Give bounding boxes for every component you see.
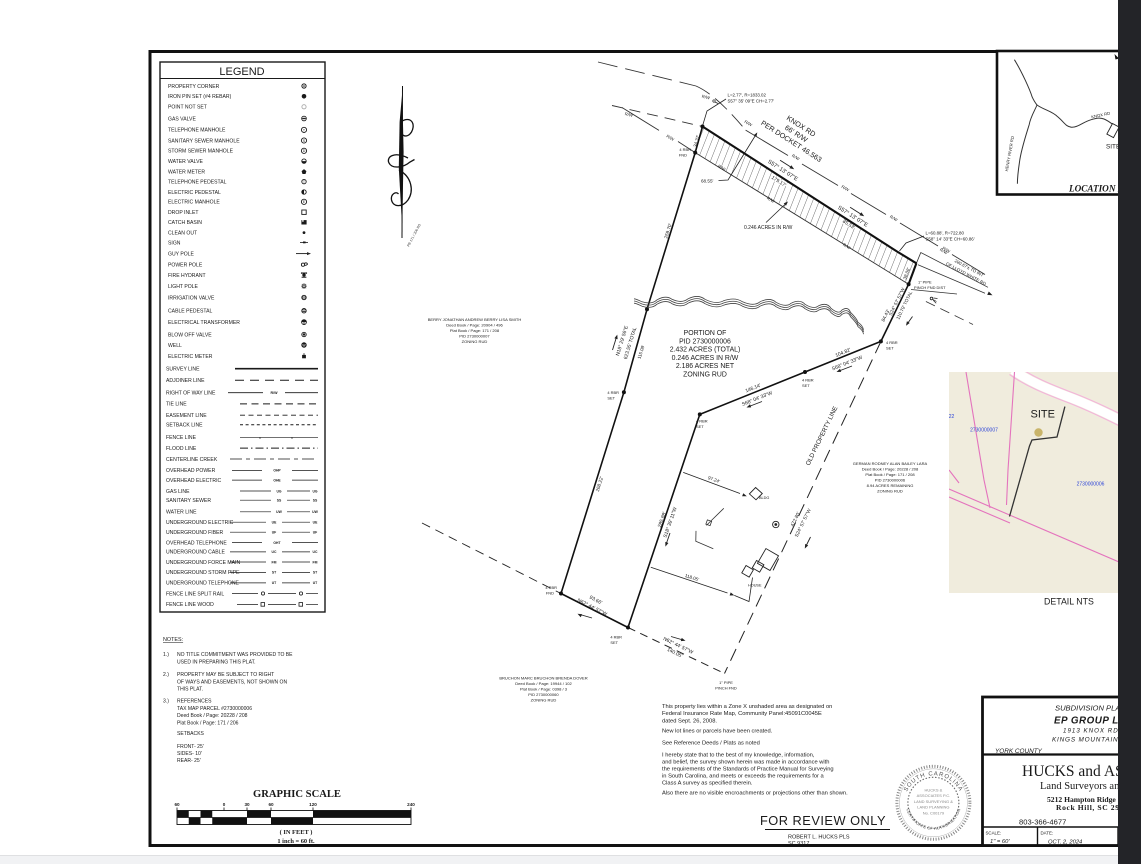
svg-text:WELL: WELL bbox=[168, 343, 182, 349]
svg-text:TELEPHONE MANHOLE: TELEPHONE MANHOLE bbox=[168, 128, 226, 134]
svg-text:FENCE LINE WOOD: FENCE LINE WOOD bbox=[166, 602, 214, 608]
svg-text:POINT NOT SET: POINT NOT SET bbox=[168, 105, 207, 111]
svg-text:POWER POLE: POWER POLE bbox=[168, 263, 203, 269]
svg-text:803-366-4677: 803-366-4677 bbox=[1019, 818, 1066, 827]
svg-text:PID 2730000006: PID 2730000006 bbox=[679, 338, 731, 345]
svg-text:4 RBR: 4 RBR bbox=[679, 147, 691, 152]
svg-text:Federal Insurance Rate Map, Co: Federal Insurance Rate Map, Community Pa… bbox=[662, 711, 822, 717]
svg-text:and belief, the survey shown h: and belief, the survey shown herein was … bbox=[662, 760, 829, 766]
svg-text:HUCKS &: HUCKS & bbox=[925, 787, 943, 792]
svg-text:68.55': 68.55' bbox=[701, 179, 713, 184]
svg-text:FENCE LINE: FENCE LINE bbox=[166, 435, 197, 441]
svg-text:BERRY JONATHAN ANDREW BERRY LI: BERRY JONATHAN ANDREW BERRY LISA SMITH bbox=[428, 317, 522, 322]
svg-text:PROPERTY CORNER: PROPERTY CORNER bbox=[168, 84, 220, 90]
svg-text:USED IN PREPARING THIS PLAT.: USED IN PREPARING THIS PLAT. bbox=[177, 659, 256, 665]
svg-text:SET: SET bbox=[802, 383, 810, 388]
svg-text:UNDERGROUND TELEPHONE: UNDERGROUND TELEPHONE bbox=[166, 581, 240, 587]
svg-text:CENTERLINE CREEK: CENTERLINE CREEK bbox=[166, 457, 218, 463]
svg-text:This property lies within a Zo: This property lies within a Zone X unsha… bbox=[662, 704, 832, 710]
svg-text:8.94 ACRES REMAINING: 8.94 ACRES REMAINING bbox=[867, 483, 914, 488]
svg-text:TELEPHONE PEDESTAL: TELEPHONE PEDESTAL bbox=[168, 179, 227, 185]
svg-text:SANITARY SEWER MANHOLE: SANITARY SEWER MANHOLE bbox=[168, 138, 240, 144]
svg-text:FND: FND bbox=[546, 591, 554, 596]
svg-text:OF WAYS AND EASEMENTS, NOT SHO: OF WAYS AND EASEMENTS, NOT SHOWN ON bbox=[177, 679, 287, 685]
svg-text:FND: FND bbox=[679, 153, 687, 158]
svg-text:Class A survey as specified th: Class A survey as specified therein. bbox=[662, 781, 753, 787]
svg-text:x: x bbox=[259, 435, 261, 440]
svg-text:WATER METER: WATER METER bbox=[168, 170, 205, 176]
svg-text:D: D bbox=[303, 149, 306, 153]
svg-text:PID 2730000007: PID 2730000007 bbox=[459, 334, 490, 339]
svg-text:1.): 1.) bbox=[163, 652, 169, 658]
svg-text:60: 60 bbox=[268, 802, 274, 807]
svg-text:OHT: OHT bbox=[273, 541, 281, 545]
svg-text:UC: UC bbox=[313, 550, 318, 554]
svg-text:CATCH BASIN: CATCH BASIN bbox=[168, 220, 202, 226]
svg-text:NOTES:: NOTES: bbox=[163, 637, 183, 643]
svg-text:FM: FM bbox=[313, 560, 318, 564]
svg-text:1913 KNOX RD: 1913 KNOX RD bbox=[1063, 728, 1119, 735]
svg-text:FIRE HYDRANT: FIRE HYDRANT bbox=[168, 273, 206, 279]
svg-text:60: 60 bbox=[174, 802, 180, 807]
svg-text:FLOOD LINE: FLOOD LINE bbox=[166, 446, 197, 452]
svg-text:T: T bbox=[303, 180, 305, 184]
svg-text:4 RBR: 4 RBR bbox=[886, 340, 898, 345]
svg-text:WATER VALVE: WATER VALVE bbox=[168, 159, 204, 165]
svg-text:See Reference Deeds / Plats as: See Reference Deeds / Plats as noted bbox=[662, 741, 760, 747]
svg-text:TAX MAP PARCEL #2730000006: TAX MAP PARCEL #2730000006 bbox=[177, 706, 252, 712]
svg-text:SIDES- 10': SIDES- 10' bbox=[177, 751, 202, 757]
svg-text:STORM SEWER MANHOLE: STORM SEWER MANHOLE bbox=[168, 149, 234, 155]
svg-text:New lot lines or parcels have: New lot lines or parcels have been creat… bbox=[662, 729, 773, 735]
svg-text:ELECTRICAL TRANSFORMER: ELECTRICAL TRANSFORMER bbox=[168, 320, 240, 326]
svg-text:NO TITLE COMMITMENT WAS PROVID: NO TITLE COMMITMENT WAS PROVIDED TO BE bbox=[177, 652, 293, 658]
svg-text:Plat Book / Page: 0398 / 3: Plat Book / Page: 0398 / 3 bbox=[520, 687, 568, 692]
svg-text:ELECTRIC METER: ELECTRIC METER bbox=[168, 354, 213, 360]
svg-text:2730000007: 2730000007 bbox=[970, 428, 998, 434]
svg-text:SIGN: SIGN bbox=[168, 240, 181, 246]
svg-text:OVERHEAD ELECTRIC: OVERHEAD ELECTRIC bbox=[166, 478, 222, 484]
svg-text:OVERHEAD POWER: OVERHEAD POWER bbox=[166, 468, 216, 474]
svg-text:FRONT- 25': FRONT- 25' bbox=[177, 744, 204, 750]
svg-text:DETAIL NTS: DETAIL NTS bbox=[1044, 597, 1094, 607]
svg-text:GERMAN RODNEY ALAN BAILEY LARA: GERMAN RODNEY ALAN BAILEY LARA bbox=[853, 461, 928, 466]
svg-text:4 RBR: 4 RBR bbox=[607, 390, 619, 395]
svg-text:0: 0 bbox=[223, 802, 226, 807]
svg-text:YORK COUNTY: YORK COUNTY bbox=[995, 748, 1043, 755]
svg-text:WATER LINE: WATER LINE bbox=[166, 510, 197, 516]
svg-text:1 inch = 60 ft.: 1 inch = 60 ft. bbox=[277, 838, 315, 845]
svg-text:Also there are no visible encr: Also there are no visible encroachments … bbox=[662, 791, 848, 797]
svg-text:ASSOCIATES P.C.: ASSOCIATES P.C. bbox=[917, 793, 951, 798]
svg-text:UF: UF bbox=[272, 531, 277, 535]
svg-text:UW: UW bbox=[276, 510, 282, 514]
svg-text:GAS LINE: GAS LINE bbox=[166, 489, 190, 495]
svg-text:120: 120 bbox=[309, 802, 317, 807]
svg-text:Plat Book / Page: 171 / 208: Plat Book / Page: 171 / 208 bbox=[450, 328, 500, 333]
svg-text:L=60.88', R=722.80: L=60.88', R=722.80 bbox=[926, 231, 965, 236]
svg-text:2.432 ACRES (TOTAL): 2.432 ACRES (TOTAL) bbox=[670, 347, 741, 354]
svg-text:RIGHT OF WAY LINE: RIGHT OF WAY LINE bbox=[166, 391, 216, 397]
svg-text:UNDERGROUND FIBER: UNDERGROUND FIBER bbox=[166, 530, 223, 536]
svg-text:No. C00179: No. C00179 bbox=[923, 811, 945, 816]
svg-text:BRUCHON MARC BRUCHON BRENDA DO: BRUCHON MARC BRUCHON BRENDA DOVER bbox=[499, 676, 587, 681]
svg-text:ZONING RUD: ZONING RUD bbox=[531, 698, 557, 703]
svg-text:ZONING RUD: ZONING RUD bbox=[683, 372, 727, 379]
svg-text:FOR REVIEW ONLY: FOR REVIEW ONLY bbox=[760, 813, 886, 828]
svg-text:240: 240 bbox=[407, 802, 415, 807]
svg-text:Deed Book / Page: 19944 / 102: Deed Book / Page: 19944 / 102 bbox=[515, 681, 572, 686]
svg-text:DROP INLET: DROP INLET bbox=[168, 210, 198, 216]
svg-text:( IN FEET ): ( IN FEET ) bbox=[280, 829, 313, 836]
svg-text:0.246 ACRES IN R/W: 0.246 ACRES IN R/W bbox=[672, 355, 739, 362]
svg-text:the requirements of the Standa: the requirements of the Standards of Pra… bbox=[662, 767, 834, 773]
svg-text:IRRIGATION VALVE: IRRIGATION VALVE bbox=[168, 295, 215, 301]
svg-text:SETBACK LINE: SETBACK LINE bbox=[166, 423, 203, 429]
svg-text:SET: SET bbox=[607, 396, 615, 401]
svg-text:PID 2730000060: PID 2730000060 bbox=[528, 692, 559, 697]
svg-text:I hereby state that to the bes: I hereby state that to the best of my kn… bbox=[662, 753, 815, 759]
svg-text:in South Carolina, and meets o: in South Carolina, and meets or exceeds … bbox=[662, 774, 825, 780]
svg-text:R/W: R/W bbox=[271, 391, 279, 395]
svg-text:UE: UE bbox=[313, 521, 318, 525]
svg-text:EASEMENT LINE: EASEMENT LINE bbox=[166, 413, 207, 419]
svg-text:LEGEND: LEGEND bbox=[219, 66, 264, 78]
svg-text:UNDERGROUND CABLE: UNDERGROUND CABLE bbox=[166, 550, 225, 556]
svg-text:ELECTRIC PEDESTAL: ELECTRIC PEDESTAL bbox=[168, 190, 221, 196]
svg-text:PINCH FND DIST: PINCH FND DIST bbox=[914, 285, 946, 290]
svg-text:30: 30 bbox=[244, 802, 250, 807]
svg-text:THIS PLAT.: THIS PLAT. bbox=[177, 687, 203, 693]
svg-text:ROBERT L. HUCKS PLS: ROBERT L. HUCKS PLS bbox=[788, 835, 850, 841]
svg-text:UNDERGROUND STORM PIPE: UNDERGROUND STORM PIPE bbox=[166, 570, 240, 576]
svg-text:TIE LINE: TIE LINE bbox=[166, 402, 187, 408]
svg-text:x: x bbox=[291, 435, 293, 440]
svg-text:UNDERGROUND ELECTRIC: UNDERGROUND ELECTRIC bbox=[166, 520, 234, 526]
svg-text:GAS VALVE: GAS VALVE bbox=[168, 116, 196, 122]
svg-text:UG: UG bbox=[276, 489, 281, 493]
svg-text:SET: SET bbox=[886, 346, 894, 351]
svg-text:2.): 2.) bbox=[163, 672, 169, 678]
svg-text:LIGHT POLE: LIGHT POLE bbox=[168, 284, 199, 290]
svg-text:2.186 ACRES NET: 2.186 ACRES NET bbox=[676, 363, 735, 370]
svg-text:SET: SET bbox=[610, 640, 618, 645]
svg-text:S58° 14' 33"E CH=60.86': S58° 14' 33"E CH=60.86' bbox=[926, 237, 975, 242]
svg-text:SCALE:: SCALE: bbox=[986, 831, 1002, 836]
svg-text:GUY POLE: GUY POLE bbox=[168, 251, 195, 257]
svg-text:SS: SS bbox=[313, 499, 318, 503]
svg-text:PINCH FND: PINCH FND bbox=[715, 686, 737, 691]
svg-text:1" PIPE: 1" PIPE bbox=[918, 280, 932, 285]
svg-text:PORTION OF: PORTION OF bbox=[684, 330, 727, 337]
svg-text:OHP: OHP bbox=[273, 469, 281, 473]
svg-text:Deed Book / Page: 20228 / 208: Deed Book / Page: 20228 / 208 bbox=[862, 467, 919, 472]
svg-text:GRAPHIC SCALE: GRAPHIC SCALE bbox=[253, 789, 341, 800]
svg-text:UF: UF bbox=[313, 531, 318, 535]
svg-text:LAND SURVEYING &: LAND SURVEYING & bbox=[914, 799, 953, 804]
svg-text:PID 2730000006: PID 2730000006 bbox=[875, 478, 906, 483]
svg-text:ZONING RUD: ZONING RUD bbox=[462, 339, 488, 344]
svg-text:4 RBR: 4 RBR bbox=[802, 378, 814, 383]
svg-text:Plat Book / Page: 171 / 208: Plat Book / Page: 171 / 208 bbox=[865, 472, 915, 477]
svg-text:SC 9317: SC 9317 bbox=[788, 841, 809, 847]
svg-text:1" PIPE: 1" PIPE bbox=[719, 680, 733, 685]
svg-text:2730000006: 2730000006 bbox=[1077, 482, 1105, 488]
svg-text:1" = 60': 1" = 60' bbox=[990, 839, 1010, 845]
svg-text:OCT. 2, 2024: OCT. 2, 2024 bbox=[1048, 840, 1082, 846]
svg-text:ZONING RUD: ZONING RUD bbox=[877, 489, 903, 494]
svg-text:4 RBR: 4 RBR bbox=[610, 635, 622, 640]
svg-text:BLOW OFF VALVE: BLOW OFF VALVE bbox=[168, 332, 212, 338]
svg-text:FM: FM bbox=[272, 560, 277, 564]
svg-text:4 RBR: 4 RBR bbox=[545, 585, 557, 590]
svg-text:REAR- 25': REAR- 25' bbox=[177, 758, 201, 764]
svg-text:REFERENCES: REFERENCES bbox=[177, 699, 212, 705]
svg-text:OHE: OHE bbox=[273, 478, 281, 482]
svg-text:Deed Book / Page: 20904 / 496: Deed Book / Page: 20904 / 496 bbox=[446, 323, 503, 328]
svg-text:CABLE PEDESTAL: CABLE PEDESTAL bbox=[168, 309, 213, 315]
svg-text:FENCE LINE SPLIT RAIL: FENCE LINE SPLIT RAIL bbox=[166, 591, 224, 597]
svg-text:Plat Book / Page: 171 / 206: Plat Book / Page: 171 / 206 bbox=[177, 720, 239, 726]
svg-text:UNDERGROUND FORCE MAIN: UNDERGROUND FORCE MAIN bbox=[166, 560, 240, 566]
svg-text:SET: SET bbox=[696, 424, 704, 429]
svg-text:CLEAN OUT: CLEAN OUT bbox=[168, 230, 197, 236]
svg-text:HOUSE: HOUSE bbox=[748, 584, 762, 588]
svg-text:SETBACKS: SETBACKS bbox=[177, 731, 205, 737]
svg-text:dated Sept. 26, 2008.: dated Sept. 26, 2008. bbox=[662, 718, 717, 724]
svg-text:BLDG: BLDG bbox=[759, 496, 769, 500]
svg-text:PROPERTY MAY BE SUBJECT TO RIG: PROPERTY MAY BE SUBJECT TO RIGHT bbox=[177, 672, 274, 678]
svg-text:SS: SS bbox=[277, 499, 282, 503]
svg-text:SANITARY SEWER: SANITARY SEWER bbox=[166, 498, 211, 504]
svg-text:Deed Book / Page: 20228 / 208: Deed Book / Page: 20228 / 208 bbox=[177, 713, 248, 719]
svg-text:UG: UG bbox=[312, 489, 317, 493]
svg-text:ADJOINER LINE: ADJOINER LINE bbox=[166, 378, 205, 384]
svg-text:SITE: SITE bbox=[1031, 409, 1055, 421]
svg-text:4 RBR: 4 RBR bbox=[696, 419, 708, 424]
svg-text:SURVEY LINE: SURVEY LINE bbox=[166, 367, 200, 373]
svg-text:S57° 35' 09"E CH=2.77': S57° 35' 09"E CH=2.77' bbox=[728, 99, 775, 104]
svg-text:LAND PLANNING: LAND PLANNING bbox=[917, 805, 949, 810]
svg-text:0.246 ACRES IN R/W: 0.246 ACRES IN R/W bbox=[744, 225, 793, 231]
svg-text:OVERHEAD TELEPHONE: OVERHEAD TELEPHONE bbox=[166, 540, 227, 546]
svg-text:UE: UE bbox=[272, 521, 277, 525]
svg-text:IRON PIN SET (#4 REBAR): IRON PIN SET (#4 REBAR) bbox=[168, 94, 232, 100]
svg-text:L=2.77', R=1833.02: L=2.77', R=1833.02 bbox=[728, 93, 767, 98]
svg-text:ELECTRIC MANHOLE: ELECTRIC MANHOLE bbox=[168, 200, 220, 206]
svg-text:DATE:: DATE: bbox=[1041, 831, 1054, 836]
svg-text:UC: UC bbox=[272, 550, 277, 554]
svg-text:UW: UW bbox=[312, 510, 318, 514]
svg-text:3.): 3.) bbox=[163, 699, 169, 705]
